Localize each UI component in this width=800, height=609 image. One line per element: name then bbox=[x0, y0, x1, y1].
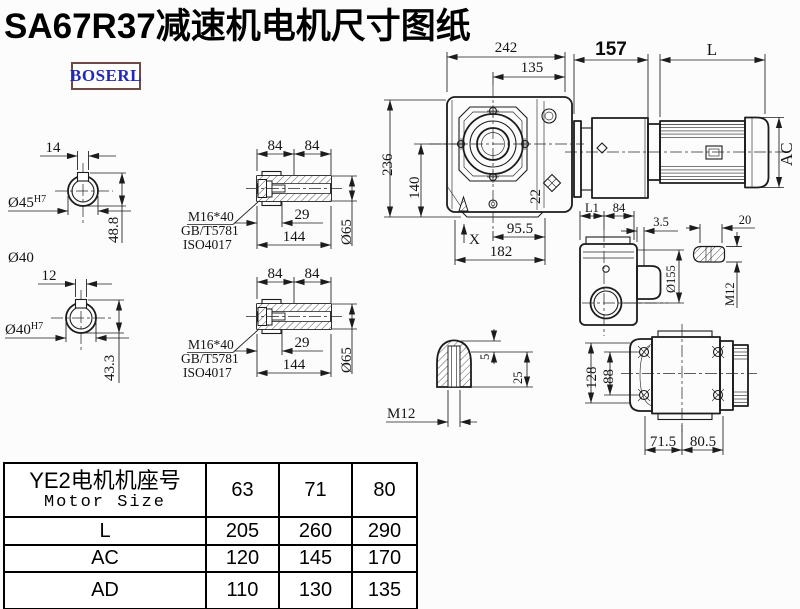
dim-depth: 29 bbox=[295, 335, 310, 351]
view-front: 242 135 236 140 22 95.5 182 X bbox=[380, 40, 584, 265]
dim-length: 144 bbox=[283, 229, 306, 245]
dim-len-b: 84 bbox=[305, 266, 321, 282]
dim-shaft-height: 43.3 bbox=[102, 355, 118, 381]
dim-len-a: 84 bbox=[268, 138, 284, 154]
table-row-label-AC: AC bbox=[5, 546, 207, 573]
drawing-page: SA67R37减速机电机尺寸图纸 BOSERL 14 bbox=[0, 0, 800, 609]
dim-height: 128 bbox=[584, 367, 600, 390]
table-header-motor-size: YE2电机机座号 Motor Size bbox=[5, 464, 207, 518]
table-value-AC-80: 170 bbox=[353, 546, 416, 573]
dim-motor-length: L bbox=[707, 40, 717, 59]
dim-center-to-flange: 135 bbox=[521, 60, 544, 76]
motor-size-table: YE2电机机座号 Motor Size 63 71 80 L 205 260 2… bbox=[3, 462, 418, 609]
label-std-1: GB/T5781 bbox=[181, 351, 239, 366]
view-shaft-section-2: 12 Ø40H7 43.3 bbox=[5, 268, 129, 383]
view-side-motor: 157 L AC bbox=[565, 39, 796, 198]
dim-key-depth: 25 bbox=[511, 372, 525, 385]
dim-width: 242 bbox=[495, 40, 518, 56]
view-rear: L1 84 3.5 Ø155 20 M12 bbox=[580, 201, 755, 336]
dim-center-to-foot: 95.5 bbox=[507, 221, 533, 237]
view-bottom: 128 88 71.5 80.5 bbox=[584, 324, 757, 455]
dim-foot-b: 80.5 bbox=[690, 434, 716, 450]
label-outer-dia: Ø40 bbox=[8, 250, 34, 266]
label-std-2: ISO4017 bbox=[183, 237, 232, 252]
dim-key-len: 20 bbox=[739, 213, 752, 227]
dim-gear-unit-length: 157 bbox=[595, 39, 627, 60]
label-std-1: GB/T5781 bbox=[181, 223, 239, 238]
table-header-cn: YE2电机机座号 bbox=[29, 468, 181, 493]
dim-len-b: 84 bbox=[305, 138, 321, 154]
dim-keyway-width: 12 bbox=[42, 268, 57, 284]
table-row-label-AD: AD bbox=[5, 573, 207, 608]
dim-84: 84 bbox=[613, 201, 626, 215]
dim-foot-a: 71.5 bbox=[650, 434, 676, 450]
dim-dia: Ø65 bbox=[339, 347, 355, 373]
view-hollow-shaft-1: 84 84 29 144 Ø65 M16*40 GB/T5781 ISO4017 bbox=[181, 138, 357, 252]
dim-shaft-height: 48.8 bbox=[106, 217, 122, 243]
dim-l1: L1 bbox=[585, 201, 599, 215]
dim-len-a: 84 bbox=[268, 266, 284, 282]
table-header-en: Motor Size bbox=[44, 493, 166, 513]
dim-motor-dia: AC bbox=[777, 142, 796, 166]
dim-depth: 29 bbox=[295, 207, 310, 223]
dim-center-height: 140 bbox=[407, 177, 423, 200]
table-value-AD-63: 110 bbox=[207, 573, 280, 608]
table-value-AC-71: 145 bbox=[280, 546, 353, 573]
label-bolt: M16*40 bbox=[188, 337, 234, 352]
view-hollow-shaft-2: 84 84 29 144 Ø65 M16*40 GB/T5781 ISO4017 bbox=[181, 266, 357, 380]
label-std-2: ISO4017 bbox=[183, 365, 232, 380]
label-thread: M12 bbox=[723, 282, 737, 306]
dim-height: 236 bbox=[380, 153, 396, 176]
table-value-L-63: 205 bbox=[207, 518, 280, 546]
dim-flange-thk: 3.5 bbox=[653, 215, 669, 229]
dim-bolt-span: 88 bbox=[601, 369, 617, 384]
dim-bore: Ø40H7 bbox=[5, 321, 43, 338]
dim-keyway-width: 14 bbox=[46, 140, 62, 156]
dim-key-height: 5 bbox=[478, 354, 492, 360]
spline-ridges bbox=[733, 349, 748, 403]
table-value-L-71: 260 bbox=[280, 518, 353, 546]
table-row-label-L: L bbox=[5, 518, 207, 546]
dim-bore: Ø45H7 bbox=[8, 194, 46, 211]
dim-dia: Ø65 bbox=[339, 219, 355, 245]
dim-length: 144 bbox=[283, 357, 306, 373]
view-key-detail: 5 25 M12 bbox=[386, 329, 533, 427]
label-thread: M12 bbox=[387, 406, 415, 422]
dim-flange-dia: Ø155 bbox=[664, 265, 678, 293]
table-value-AD-71: 130 bbox=[280, 573, 353, 608]
view-shaft-section-1: 14 Ø45H7 48.8 Ø40 bbox=[8, 140, 131, 266]
label-x-mark: X bbox=[469, 232, 480, 248]
table-value-L-80: 290 bbox=[353, 518, 416, 546]
table-size-63: 63 bbox=[207, 464, 280, 518]
dim-plug: 22 bbox=[528, 189, 544, 204]
table-value-AD-80: 135 bbox=[353, 573, 416, 608]
table-size-80: 80 bbox=[353, 464, 416, 518]
label-bolt: M16*40 bbox=[188, 209, 234, 224]
dim-foot-span: 182 bbox=[490, 244, 513, 260]
table-value-AC-63: 120 bbox=[207, 546, 280, 573]
table-size-71: 71 bbox=[280, 464, 353, 518]
